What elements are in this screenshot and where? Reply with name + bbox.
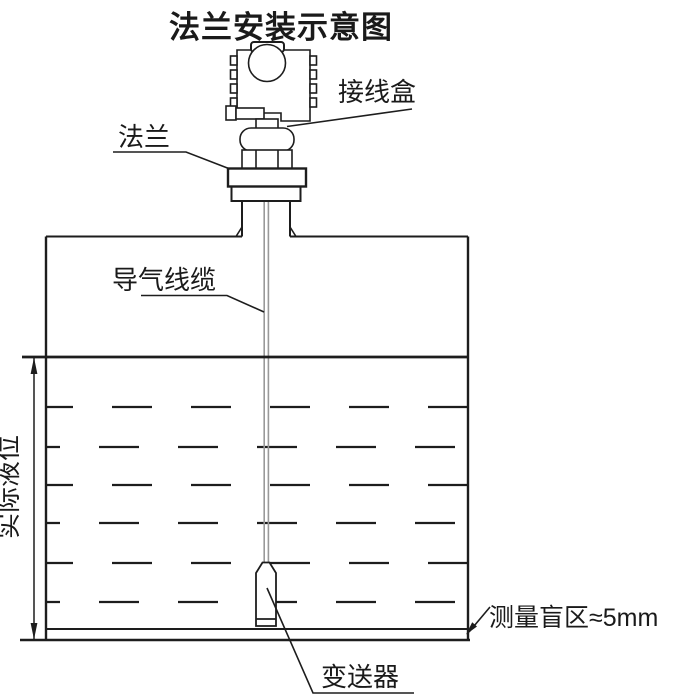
rib-icon (231, 70, 238, 79)
flange-installation-diagram: 法兰安装示意图 接线盒 法兰 导气线缆 实际液位 测量盲区≈5mm 变送器 (0, 0, 700, 700)
rib-icon (310, 70, 317, 79)
diagram-art (20, 42, 490, 693)
transmitter-head (226, 42, 317, 187)
flange-label: 法兰 (118, 122, 170, 152)
level-dimension (31, 358, 38, 640)
diagram-title: 法兰安装示意图 (169, 10, 393, 45)
cable-gland-end (226, 106, 236, 120)
actual-level-label: 实际液位 (0, 435, 23, 539)
blind-zone-label: 测量盲区≈5mm (489, 604, 658, 632)
hex-nut (242, 150, 292, 169)
probe (256, 563, 276, 627)
junction-box-label: 接线盒 (338, 77, 416, 107)
transmitter-label: 变送器 (321, 662, 399, 692)
probe-body (256, 563, 276, 627)
arrow-up-icon (31, 358, 38, 375)
cable-gland (236, 108, 264, 119)
nozzle-ring (232, 187, 301, 202)
hex-nut-body (242, 150, 292, 169)
arrow-down-icon (31, 623, 38, 640)
rib-icon (310, 84, 317, 93)
flange-leader (113, 152, 230, 169)
rib-icon (310, 98, 317, 107)
rib-icon (310, 56, 317, 65)
flange-plate (228, 169, 306, 187)
tank (20, 237, 470, 641)
suspension-cable (264, 186, 268, 563)
air-cable-leader (141, 296, 264, 313)
nozzle (232, 187, 301, 237)
connection-barrel (240, 128, 294, 151)
rib-icon (231, 84, 238, 93)
diagram-labels: 法兰安装示意图 接线盒 法兰 导气线缆 实际液位 测量盲区≈5mm 变送器 (0, 10, 658, 692)
diagram-canvas: 法兰安装示意图 接线盒 法兰 导气线缆 实际液位 测量盲区≈5mm 变送器 (0, 0, 700, 700)
rib-icon (231, 56, 238, 65)
display-dome (249, 45, 286, 82)
air-cable-label: 导气线缆 (112, 265, 216, 295)
